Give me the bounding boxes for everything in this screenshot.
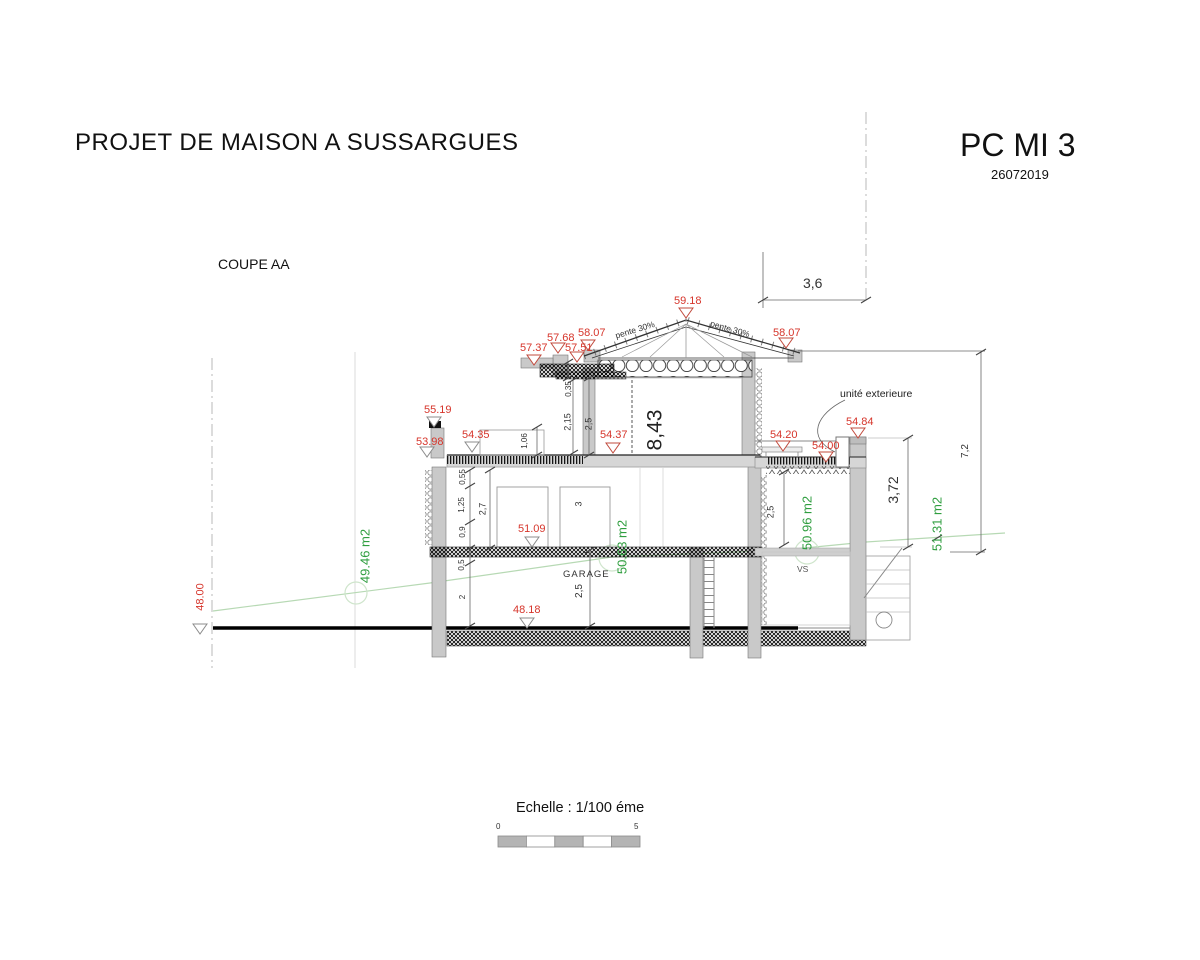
level-terrace-right-b: 54.00 [812, 441, 840, 452]
level-upper-slab-c: 57.37 [520, 343, 548, 354]
scale-end: 5 [634, 823, 638, 831]
level-soffit-left: 53.98 [416, 437, 444, 448]
dim-gf-slab: 0,5 [458, 559, 466, 570]
scale-start: 0 [496, 823, 500, 831]
dim-upper-a: 0,35 [565, 381, 573, 397]
level-wall-cap-right: 54.84 [846, 417, 874, 428]
crawl-space-label: VS [797, 565, 808, 574]
dim-garage-wall: 2 [459, 595, 467, 599]
level-eave-left: 58.07 [578, 328, 606, 339]
level-ridge: 59.18 [674, 296, 702, 307]
dim-gf-a: 0,55 [459, 469, 467, 485]
area-left: 49.46 m2 [359, 529, 372, 583]
ground-line [213, 628, 866, 646]
dim-right-room: 2,5 [767, 506, 776, 519]
level-upper-slab-b: 57.51 [565, 343, 593, 354]
level-terrain-left: 48.00 [196, 583, 207, 611]
dim-gf-door: 3 [575, 501, 584, 506]
level-terrace-left: 54.35 [462, 430, 490, 441]
dim-gf-c: 0,9 [459, 526, 467, 537]
section-name: COUPE AA [218, 257, 290, 271]
dim-total-height-right: 7,2 [961, 444, 971, 458]
area-garage: 50.63 m2 [616, 520, 629, 574]
wall-insulation [425, 368, 767, 625]
footing-detail [864, 548, 910, 640]
dim-gf-room: 2,7 [479, 503, 488, 516]
level-eave-right: 58.07 [773, 328, 801, 339]
garage-stair [704, 558, 714, 628]
exterior-unit-label: unité exterieure [840, 389, 912, 400]
dim-right-drop: 3,72 [886, 476, 900, 503]
scale-bar [498, 836, 640, 847]
area-right: 50.96 m2 [801, 496, 814, 550]
level-floor-garage: 48.18 [513, 605, 541, 616]
area-far-right: 51.31 m2 [931, 497, 944, 551]
level-floor-upper: 54.37 [600, 430, 628, 441]
scale-caption: Echelle : 1/100 éme [516, 801, 644, 816]
dim-upper-c: 2,5 [585, 418, 594, 431]
garage-label: GARAGE [563, 570, 610, 580]
doc-date: 26072019 [991, 168, 1049, 181]
axis-lines [212, 112, 866, 668]
upper-slab-hatch [540, 364, 626, 379]
dim-gf-b: 1,25 [458, 497, 466, 513]
dim-upper-b: 2,15 [564, 413, 573, 431]
dim-overhang-width: 3,6 [803, 276, 822, 290]
level-parapet: 55.19 [424, 405, 452, 416]
doc-code: PC MI 3 [960, 129, 1076, 161]
level-floor-ground: 51.09 [518, 524, 546, 535]
drawing-sheet: PROJET DE MAISON A SUSSARGUES PC MI 3 26… [0, 0, 1200, 960]
dim-total-height-center: 8,43 [645, 410, 666, 451]
level-terrace-right-a: 54.20 [770, 430, 798, 441]
dim-terrace-window: 1,06 [521, 433, 529, 449]
dim-garage-room: 2,5 [575, 584, 585, 598]
page-title: PROJET DE MAISON A SUSSARGUES [75, 131, 519, 155]
